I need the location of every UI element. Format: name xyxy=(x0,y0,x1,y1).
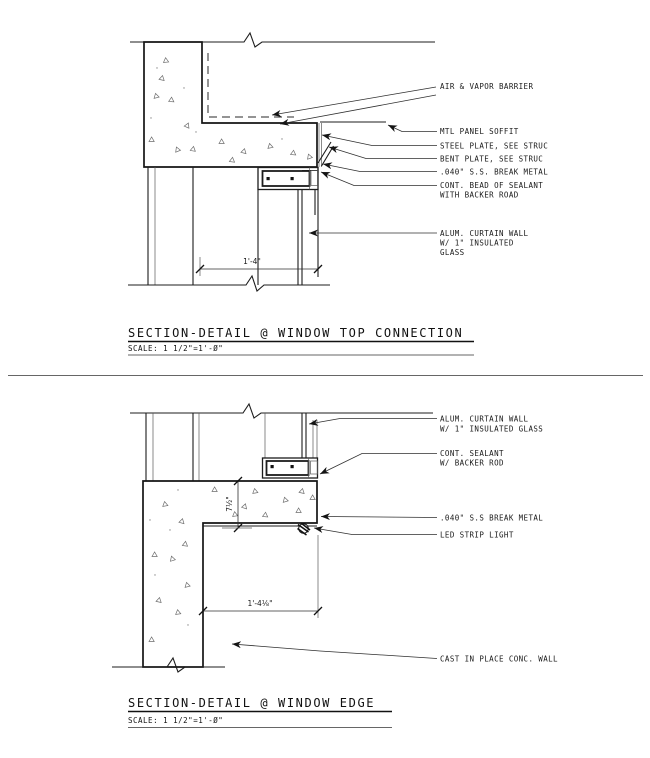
leader-curtain-wall xyxy=(309,419,437,425)
glazing-mullion-lines xyxy=(302,413,306,458)
top-detail-drawing: 1'-4" AIR & VAPOR BARRIER MTL PANEL SOFF… xyxy=(128,33,548,355)
curtain-wall-head-mullion xyxy=(258,168,318,190)
annotation-labels: ALUM. CURTAIN WALL W/ 1" INSULATED GLASS… xyxy=(440,415,558,664)
width-dimension: 1'-4⅛" xyxy=(199,535,322,618)
label-air-vapor-barrier: AIR & VAPOR BARRIER xyxy=(440,82,533,91)
bottom-detail-title: SECTION-DETAIL @ WINDOW EDGE xyxy=(128,696,375,710)
label-steel-plate: STEEL PLATE, SEE STRUC xyxy=(440,142,548,151)
label-sealant-2: WITH BACKER ROAD xyxy=(440,191,519,200)
width-dimension: 1'-4" xyxy=(196,257,322,276)
label-sealant-2: W/ BACKER ROD xyxy=(440,459,504,468)
label-break-metal: .040" S.S. BREAK METAL xyxy=(440,168,548,177)
bent-plate-line xyxy=(318,142,334,166)
bottom-detail-drawing: 7½" 1'-4⅛" ALUM. CURTAIN WALL W/ 1" INSU… xyxy=(112,404,558,728)
section-details-drawing: 1'-4" AIR & VAPOR BARRIER MTL PANEL SOFF… xyxy=(0,0,650,758)
concrete-slab-profile xyxy=(144,42,317,167)
drawing-sheet: 1'-4" AIR & VAPOR BARRIER MTL PANEL SOFF… xyxy=(0,0,650,758)
label-curtain-2: W/ 1" INSULATED xyxy=(440,239,514,248)
dimension-text: 1'-4" xyxy=(243,257,261,266)
glazing-mullion-lines xyxy=(258,190,318,286)
leader-bent-plate xyxy=(329,147,437,159)
label-mtl-panel-soffit: MTL PANEL SOFFIT xyxy=(440,127,519,136)
anchor-dot xyxy=(271,465,274,468)
label-curtain-1: ALUM. CURTAIN WALL xyxy=(440,229,529,238)
leader-steel-plate xyxy=(322,135,437,146)
label-curtain-3: GLASS xyxy=(440,248,465,257)
annotation-labels: AIR & VAPOR BARRIER MTL PANEL SOFFIT STE… xyxy=(440,82,548,257)
leader-led-light xyxy=(314,528,437,535)
anchor-dot xyxy=(291,465,294,468)
wall-above-finish-lines xyxy=(153,413,199,481)
curtain-wall-sill-mullion xyxy=(263,458,318,478)
leader-lines xyxy=(232,419,437,659)
label-sealant-1: CONT. SEALANT xyxy=(440,449,504,458)
dimension-text: 7½" xyxy=(225,496,234,512)
top-detail-title: SECTION-DETAIL @ WINDOW TOP CONNECTION xyxy=(128,326,463,340)
led-strip-light-fixture xyxy=(298,523,311,535)
anchor-dot xyxy=(291,177,294,180)
top-line-with-break xyxy=(130,404,433,418)
label-bent-plate: BENT PLATE, SEE STRUC xyxy=(440,155,543,164)
leader-sealant xyxy=(321,172,437,186)
label-led-strip: LED STRIP LIGHT xyxy=(440,531,514,540)
label-curtain-1: ALUM. CURTAIN WALL xyxy=(440,415,529,424)
leader-conc-wall xyxy=(232,644,437,659)
label-sealant-1: CONT. BEAD OF SEALANT xyxy=(440,181,543,190)
ground-line-with-break xyxy=(128,276,330,291)
top-detail-scale: SCALE: 1 1/2"=1'-Ø" xyxy=(128,344,223,353)
leader-air-vapor-1 xyxy=(272,87,436,115)
bottom-detail-scale: SCALE: 1 1/2"=1'-Ø" xyxy=(128,716,223,725)
leader-break-metal xyxy=(323,164,437,172)
label-conc-wall: CAST IN PLACE CONC. WALL xyxy=(440,655,558,664)
label-break-metal: .040" S.S BREAK METAL xyxy=(440,514,543,523)
leader-sealant xyxy=(320,454,437,475)
label-curtain-2: W/ 1" INSULATED GLASS xyxy=(440,425,543,434)
leader-soffit xyxy=(388,125,437,132)
air-vapor-barrier-line xyxy=(208,53,294,117)
dimension-text: 1'-4⅛" xyxy=(247,599,272,608)
mullion-face-lines xyxy=(265,413,317,458)
leader-break-metal xyxy=(321,517,437,518)
anchor-dot xyxy=(267,177,270,180)
